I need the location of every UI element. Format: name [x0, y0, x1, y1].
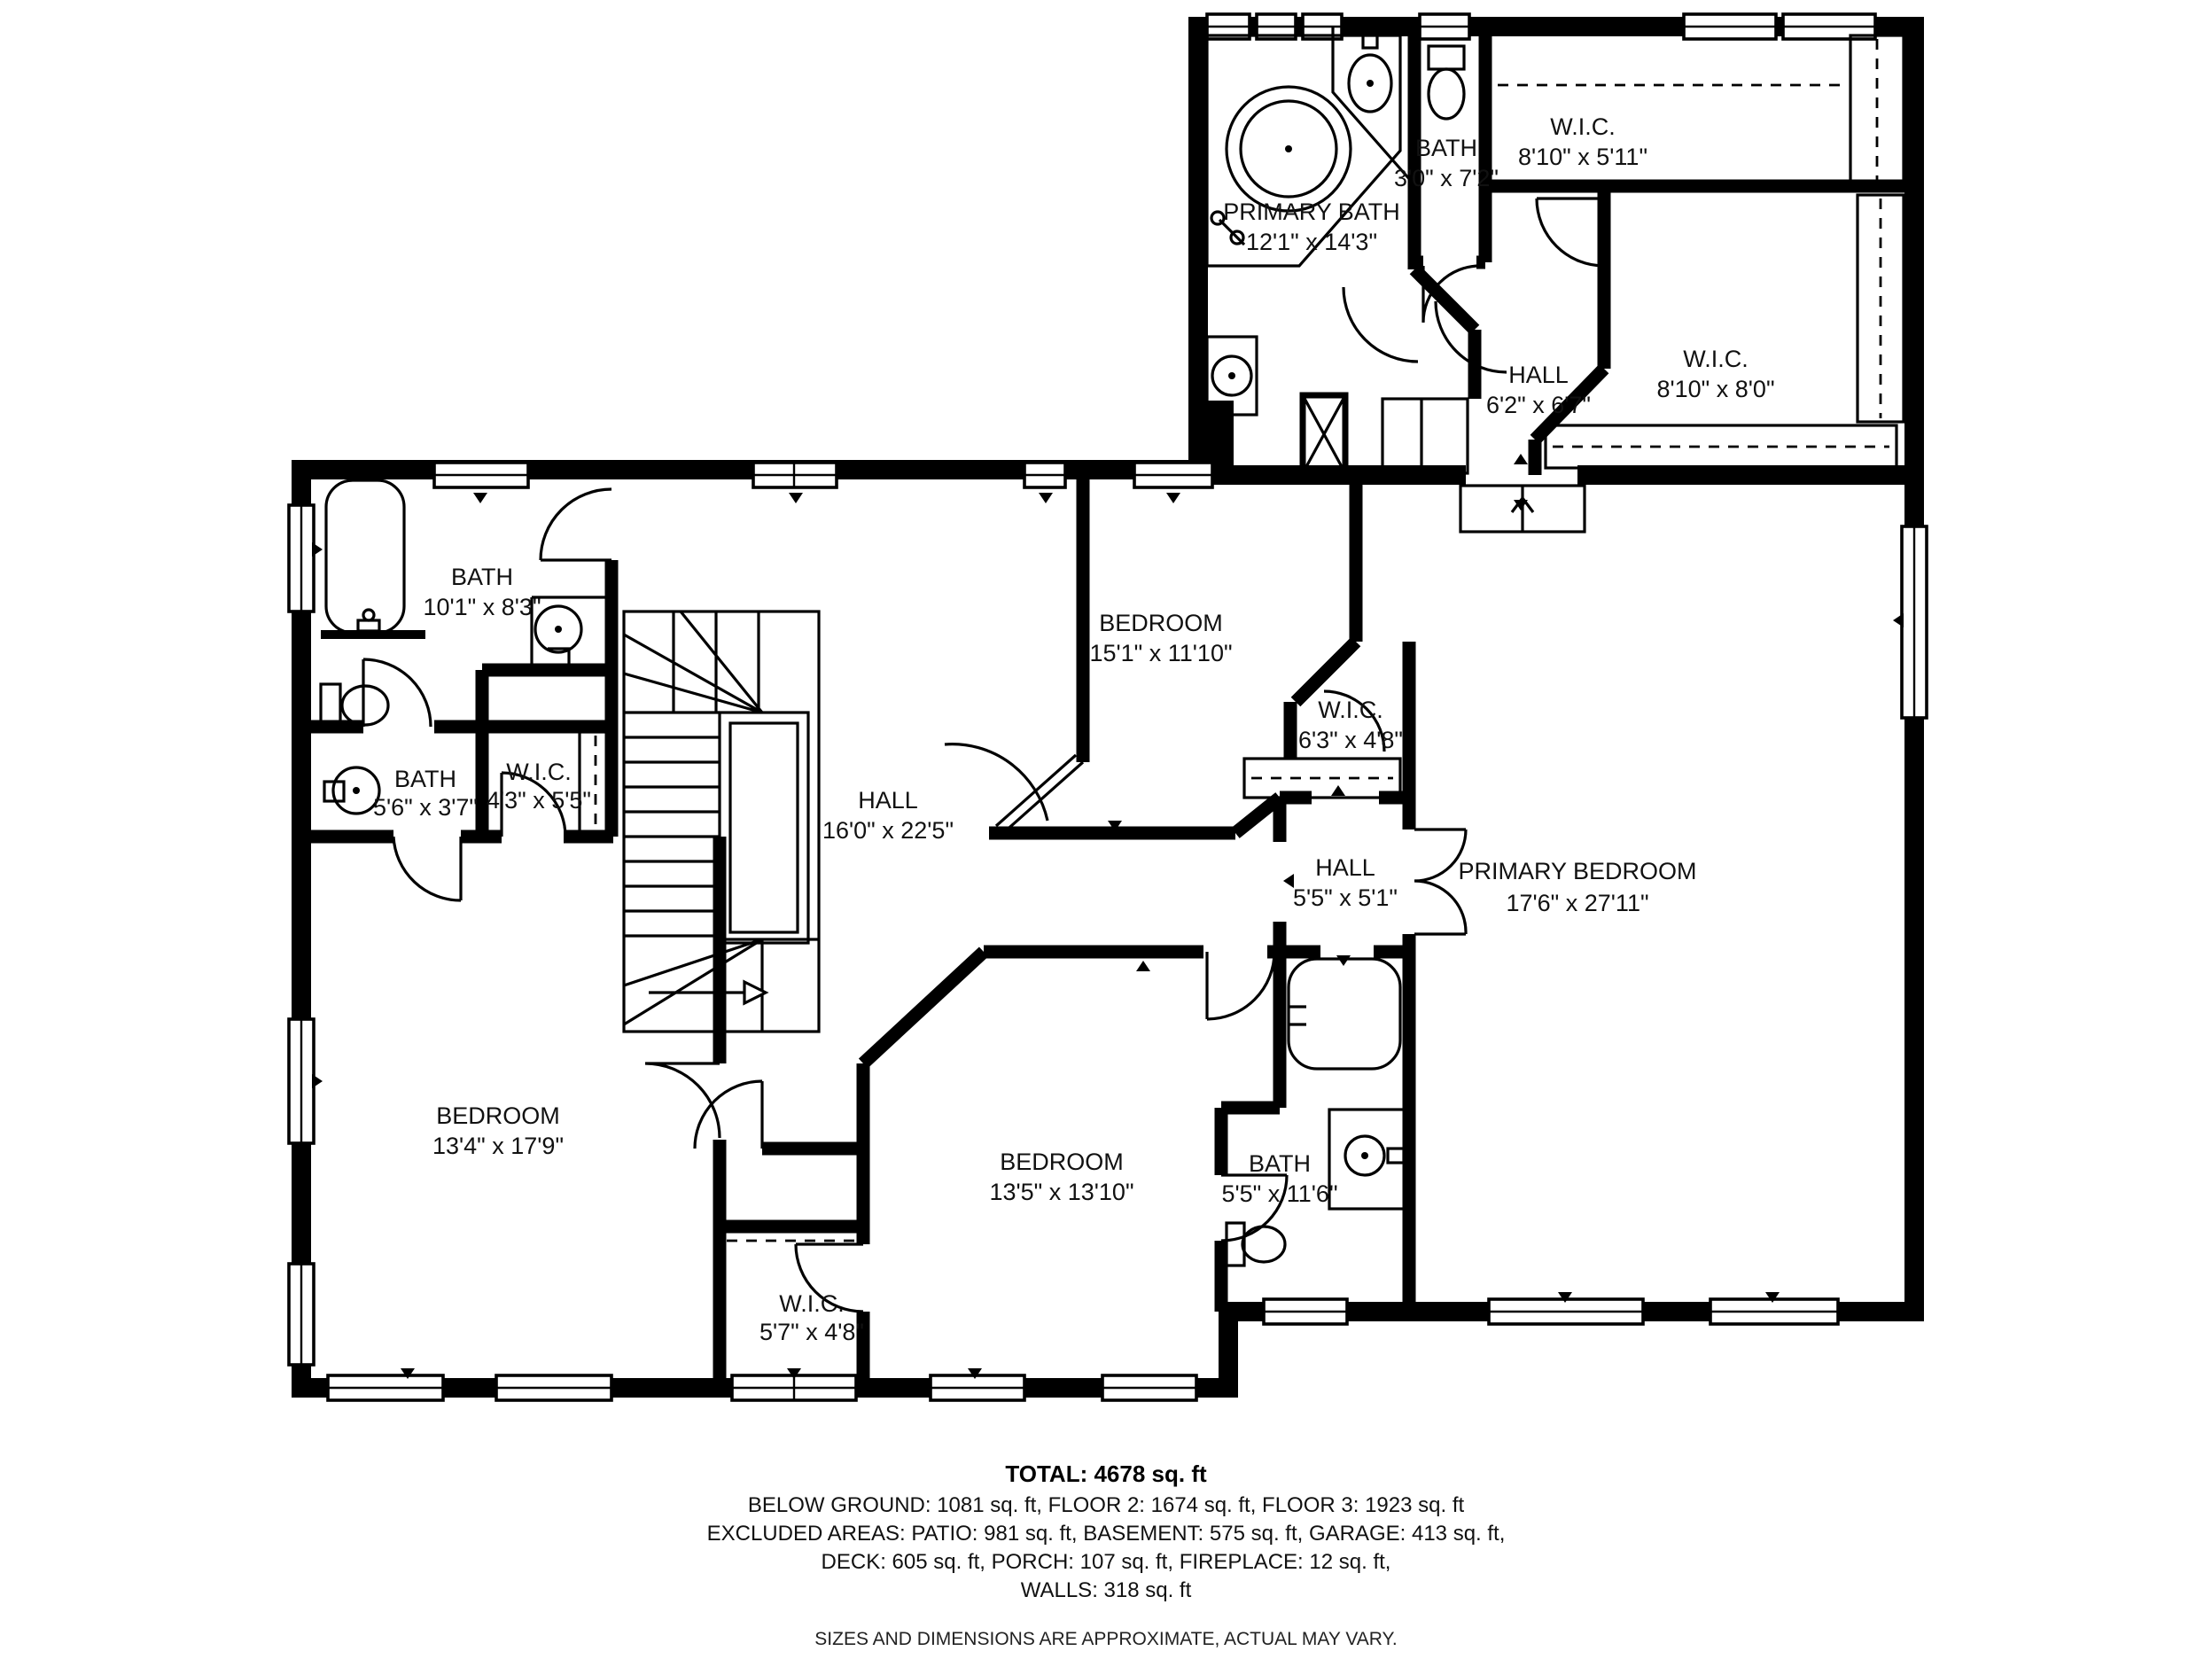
summary-line-2: EXCLUDED AREAS: PATIO: 981 sq. ft, BASEM…	[707, 1522, 1506, 1546]
room-dims-bedroom-left: 13'4" x 17'9"	[432, 1133, 564, 1159]
room-label-primary-bedroom: PRIMARY BEDROOM	[1458, 858, 1696, 884]
sink-drain	[1367, 80, 1374, 87]
sink-faucet	[1388, 1149, 1404, 1163]
room-dims-hall-main: 16'0" x 22'5"	[822, 817, 954, 844]
sink-drain	[1228, 372, 1235, 379]
room-label-bath-small-top: BATH	[1415, 135, 1477, 161]
room-label-wic-mid-left: W.I.C.	[506, 759, 572, 785]
sink-drain	[353, 787, 360, 794]
room-dims-bedroom-center: 15'1" x 11'10"	[1089, 640, 1232, 666]
area-summary: TOTAL: 4678 sq. ft BELOW GROUND: 1081 sq…	[707, 1460, 1506, 1649]
room-label-bath-mid-left: BATH	[394, 766, 456, 792]
room-label-bedroom-center: BEDROOM	[1099, 610, 1223, 636]
vanity-counter	[1329, 1110, 1406, 1209]
toilet-icon	[342, 686, 388, 725]
tub-handle	[1211, 212, 1224, 224]
room-label-hall-upper: HALL	[1508, 362, 1569, 388]
bathtub-icon	[1289, 959, 1400, 1069]
passage-markers	[312, 454, 1904, 1379]
room-label-wic-center: W.I.C.	[1318, 697, 1383, 723]
room-label-wic-mid-right: W.I.C.	[1683, 346, 1749, 372]
room-dims-bedroom-bottom: 13'5" x 13'10"	[989, 1179, 1133, 1205]
attic-arrow-icon	[1512, 486, 1533, 532]
room-dims-bath-mid-left: 5'6" x 3'7"	[373, 794, 478, 821]
stair-well	[720, 713, 808, 943]
sink-drain	[1361, 1152, 1368, 1159]
summary-line-1: BELOW GROUND: 1081 sq. ft, FLOOR 2: 1674…	[748, 1493, 1465, 1517]
summary-total: TOTAL: 4678 sq. ft	[1005, 1460, 1207, 1487]
tub-drain	[1285, 145, 1292, 152]
room-dims-wic-center: 6'3" x 4'8"	[1298, 727, 1403, 753]
vanity-counter-edge	[532, 597, 611, 670]
room-label-bath-bottom: BATH	[1249, 1150, 1311, 1177]
toilet-icon	[1429, 69, 1464, 119]
room-dims-hall-small: 5'5" x 5'1"	[1293, 884, 1398, 911]
room-dims-hall-upper: 6'2" x 6'7"	[1486, 392, 1591, 418]
stair-rail	[730, 723, 798, 932]
toilet-icon	[1242, 1227, 1285, 1262]
room-dims-wic-mid-left: 4'3" x 5'5"	[487, 787, 591, 814]
floor-plan: PRIMARY BATH 12'1" x 14'3" BATH 3'0" x 7…	[0, 0, 2212, 1659]
summary-line-4: WALLS: 318 sq. ft	[1021, 1578, 1192, 1602]
room-dims-bath-bottom: 5'5" x 11'6"	[1221, 1180, 1337, 1207]
shower-x	[1303, 395, 1345, 473]
room-label-wic-top-right: W.I.C.	[1550, 113, 1616, 140]
toilet-tank	[1429, 46, 1464, 69]
room-dims-bath-top-left: 10'1" x 8'3"	[423, 594, 541, 620]
room-dims-wic-mid-right: 8'10" x 8'0"	[1656, 376, 1774, 402]
room-dims-bath-small-top: 3'0" x 7'2"	[1394, 165, 1499, 191]
room-label-hall-small: HALL	[1315, 854, 1375, 881]
closet-shelf	[1858, 195, 1904, 422]
room-dims-wic-bottom: 5'7" x 4'8"	[759, 1319, 864, 1345]
summary-line-3: DECK: 605 sq. ft, PORCH: 107 sq. ft, FIR…	[822, 1550, 1391, 1574]
room-label-bath-top-left: BATH	[451, 564, 513, 590]
room-label-hall-main: HALL	[858, 787, 918, 814]
room-label-bedroom-bottom: BEDROOM	[1000, 1149, 1124, 1175]
room-dims-primary-bath: 12'1" x 14'3"	[1246, 229, 1377, 255]
room-label-primary-bath: PRIMARY BATH	[1223, 199, 1400, 225]
sink-drain	[555, 626, 562, 633]
opening-markers	[312, 454, 1904, 1379]
tub-faucet	[358, 620, 379, 631]
room-label-bedroom-left: BEDROOM	[436, 1102, 560, 1129]
linen-closet	[1382, 399, 1468, 473]
room-label-wic-bottom: W.I.C.	[779, 1290, 845, 1317]
summary-disclaimer: SIZES AND DIMENSIONS ARE APPROXIMATE, AC…	[814, 1629, 1397, 1649]
room-dims-primary-bedroom: 17'6" x 27'11"	[1506, 890, 1648, 916]
tub-faucet	[1289, 1007, 1306, 1024]
room-dims-wic-top-right: 8'10" x 5'11"	[1518, 144, 1647, 170]
tub-handle	[363, 610, 374, 620]
